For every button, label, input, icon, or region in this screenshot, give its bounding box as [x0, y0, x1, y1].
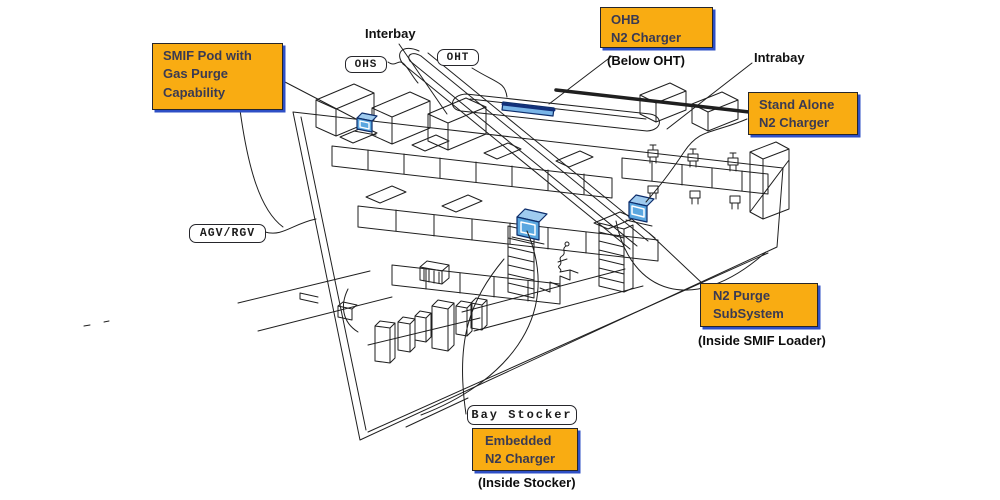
bay-stocker-tag-text: Bay Stocker — [471, 408, 572, 422]
n2-purge-note: (Inside SMIF Loader) — [698, 333, 826, 348]
equipment-band-1 — [332, 127, 612, 198]
ohs-tag: OHS — [345, 56, 387, 73]
callout-pointer-lines — [240, 44, 752, 427]
standalone-charger-callout-line1: Stand Alone — [759, 96, 851, 114]
back-shed-row — [316, 84, 486, 150]
agv-rgv-tag: AGV/RGV — [189, 224, 266, 243]
embedded-charger-callout: Embedded N2 Charger — [472, 428, 578, 471]
smif-pod-callout-line2: Gas Purge — [163, 65, 276, 83]
fab-automation-diagram: SMIF Pod with Gas Purge Capability Inter… — [0, 0, 1000, 500]
agv-rgv-tag-text: AGV/RGV — [200, 227, 255, 240]
ohb-charger-note: (Below OHT) — [607, 53, 685, 68]
bottom-left-boxes — [368, 298, 487, 363]
embedded-charger-callout-line2: N2 Charger — [485, 450, 571, 468]
ohb-charger-callout-line1: OHB — [611, 11, 706, 29]
n2-purge-callout-line1: N2 Purge — [713, 287, 811, 305]
standalone-charger-callout: Stand Alone N2 Charger — [748, 92, 858, 135]
n2-purge-callout: N2 Purge SubSystem — [700, 283, 818, 327]
smif-pod-callout-line1: SMIF Pod with — [163, 47, 276, 65]
agv-vehicle — [300, 261, 449, 320]
smif-pod-callout-line3: Capability — [163, 84, 276, 102]
ohb-charger-callout: OHB N2 Charger — [600, 7, 713, 48]
standalone-charger-marker — [626, 195, 654, 226]
oht-tag-text: OHT — [447, 52, 470, 64]
standalone-charger-callout-line2: N2 Charger — [759, 114, 851, 132]
smif-pod-callout: SMIF Pod with Gas Purge Capability — [152, 43, 283, 110]
interbay-track — [400, 48, 758, 249]
embedded-charger-callout-line1: Embedded — [485, 432, 571, 450]
robot-arm — [558, 242, 570, 272]
ohb-charger-marker — [502, 102, 554, 116]
embedded-charger-note: (Inside Stocker) — [478, 475, 576, 490]
n2-purge-callout-line2: SubSystem — [713, 305, 811, 323]
bay-stocker-tag: Bay Stocker — [467, 405, 577, 425]
floor-aisle-lines — [84, 221, 766, 332]
oht-tag: OHT — [437, 49, 479, 66]
interbay-label: Interbay — [365, 26, 416, 41]
fab-line-art — [0, 0, 1000, 500]
intrabay-label: Intrabay — [754, 50, 805, 65]
ohb-charger-callout-line2: N2 Charger — [611, 29, 706, 47]
ohs-tag-text: OHS — [355, 59, 378, 71]
